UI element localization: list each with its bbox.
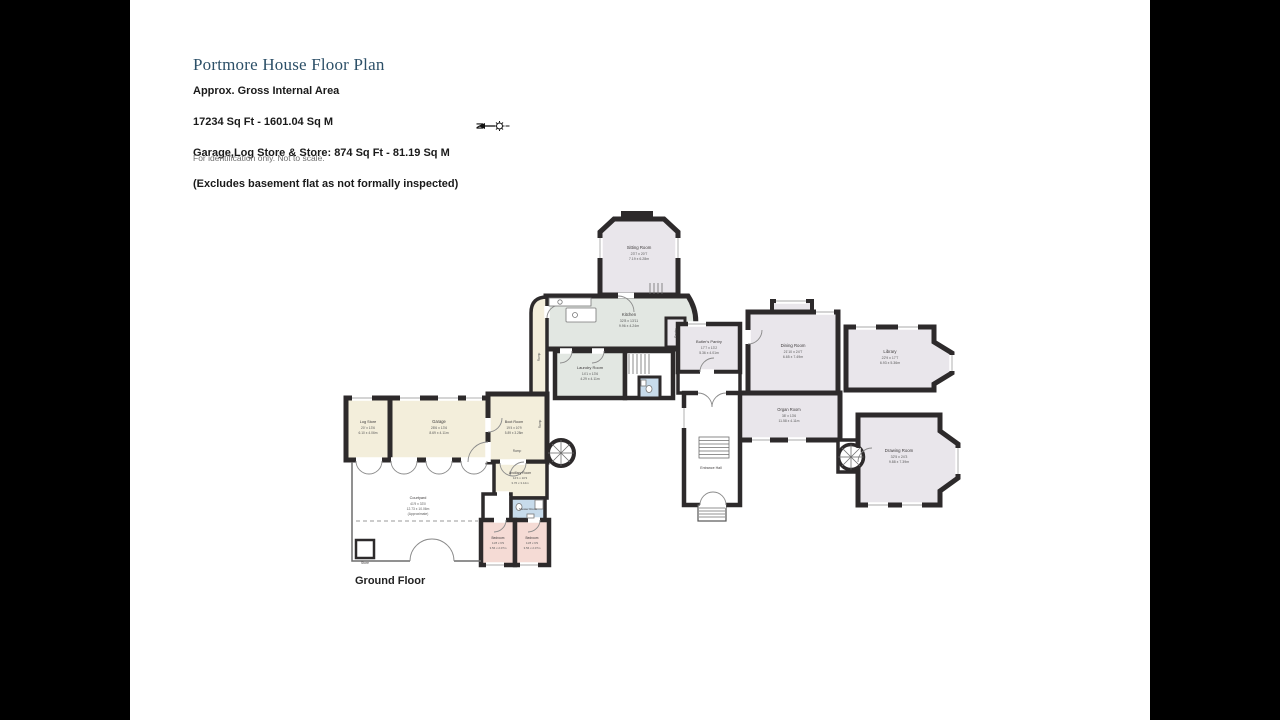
- garage-dims-ft: 28'6 x 13'6: [431, 426, 447, 430]
- pantry-label: Pantry: [674, 328, 678, 338]
- garage-label: Garage: [432, 419, 446, 424]
- wc-toilet: [646, 386, 652, 393]
- bedroom-2-label: Bedroom: [526, 536, 539, 540]
- laundry-label: Laundry Room: [577, 365, 604, 370]
- courtyard-label: Courtyard: [410, 496, 427, 500]
- dining-room-dims-ft: 21'10 x 24'7: [784, 350, 803, 354]
- entrance-hall-label: Entrance Hall: [700, 466, 722, 470]
- bedroom-2-dims-ft: 11'8 x 6'9: [526, 541, 538, 545]
- ancillary-room-dims-ft: 12'4 x 10'3: [513, 476, 528, 480]
- spiral-east-treads: [839, 445, 864, 470]
- sitting-room-dims-m: 7.19 x 6.28m: [629, 257, 649, 261]
- library-dims-ft: 22'9 x 17'7: [882, 356, 899, 360]
- bedroom-1-dims-m: 3.56 x 2.07m: [490, 546, 507, 550]
- bedroom-lobby: [483, 494, 511, 520]
- ramp-label-corridor: Ramp: [537, 353, 541, 362]
- ancillary-room-dims-m: 3.76 x 3.12m: [511, 481, 529, 485]
- butlers-pantry-dims-m: 5.36 x 4.01m: [699, 351, 719, 355]
- screenshot-stage: Portmore House Floor Plan Approx. Gross …: [0, 0, 1280, 720]
- room-store: [356, 540, 374, 558]
- boot-room-dims-ft: 19'4 x 10'9: [506, 426, 521, 430]
- courtyard-dims-m: 12.73 x 10.06m: [407, 507, 430, 511]
- courtyard-note: (Approximate): [408, 512, 429, 516]
- kitchen-dims-ft: 32'8 x 13'11: [620, 319, 638, 323]
- main-stairs: [699, 437, 729, 458]
- courtyard-dims-ft: 41'9 x 33'0: [410, 502, 426, 506]
- log-store-dims-m: 6.10 x 4.06m: [358, 431, 377, 435]
- log-store-label: Log Store: [360, 420, 376, 424]
- library-dims-m: 6.93 x 5.36m: [880, 361, 900, 365]
- shower-basin: [527, 514, 534, 518]
- kitchen-island: [566, 308, 596, 322]
- dining-room-label: Dining Room: [781, 343, 806, 348]
- bedroom-2-dims-m: 3.56 x 2.07m: [524, 546, 541, 550]
- log-store-dims-ft: 20' x 13'6: [361, 426, 375, 430]
- organ-room-dims-m: 11.58 x 4.11m: [779, 419, 800, 423]
- bedroom-1-label: Bedroom: [492, 536, 505, 540]
- ramp-label-boot-horizontal: Ramp: [513, 449, 522, 453]
- butlers-pantry-label: Butler's Pantry: [696, 339, 722, 344]
- laundry-dims-ft: 14'1 x 13'6: [582, 372, 598, 376]
- boot-room-label: Boot Room: [505, 420, 523, 424]
- store-label: Store: [361, 561, 369, 565]
- room-entrance-hall: [684, 393, 740, 505]
- organ-room-dims-ft: 38' x 13'6: [782, 414, 796, 418]
- drawing-room-dims-m: 9.88 x 7.39m: [889, 460, 909, 464]
- organ-room-label: Organ Room: [777, 407, 801, 412]
- butlers-pantry-dims-ft: 17'7 x 13'2: [701, 346, 717, 350]
- drawing-room-dims-ft: 32'5 x 24'3: [891, 455, 908, 459]
- wc-basin: [641, 380, 646, 386]
- room-library: [846, 327, 952, 390]
- dining-room-dims-m: 6.65 x 7.49m: [783, 355, 803, 359]
- sitting-room-dims-ft: 23'7 x 20'7: [631, 252, 648, 256]
- kitchen-label: Kitchen: [622, 312, 637, 317]
- garage-dims-m: 8.69 x 4.11m: [429, 431, 449, 435]
- bedroom-1-dims-ft: 11'8 x 6'9: [492, 541, 504, 545]
- ancillary-room-label: Ancillary Room: [509, 471, 531, 475]
- shower-room-label: Shower Room: [519, 507, 538, 511]
- floorplan-drawing: Sitting Room 23'7 x 20'7 7.19 x 6.28m Ki…: [0, 0, 1280, 720]
- ramp-label-boot-vertical: Ramp: [538, 420, 542, 429]
- drawing-room-label: Drawing Room: [885, 448, 914, 453]
- hall-corridor: [678, 372, 740, 393]
- sitting-room-label: Sitting Room: [627, 245, 652, 250]
- boot-room-dims-m: 5.89 x 3.28m: [505, 431, 524, 435]
- kitchen-dims-m: 9.96 x 4.24m: [619, 324, 639, 328]
- kitchen-counter: [549, 298, 591, 306]
- laundry-dims-m: 4.29 x 4.11m: [580, 377, 600, 381]
- library-label: Library: [883, 349, 897, 354]
